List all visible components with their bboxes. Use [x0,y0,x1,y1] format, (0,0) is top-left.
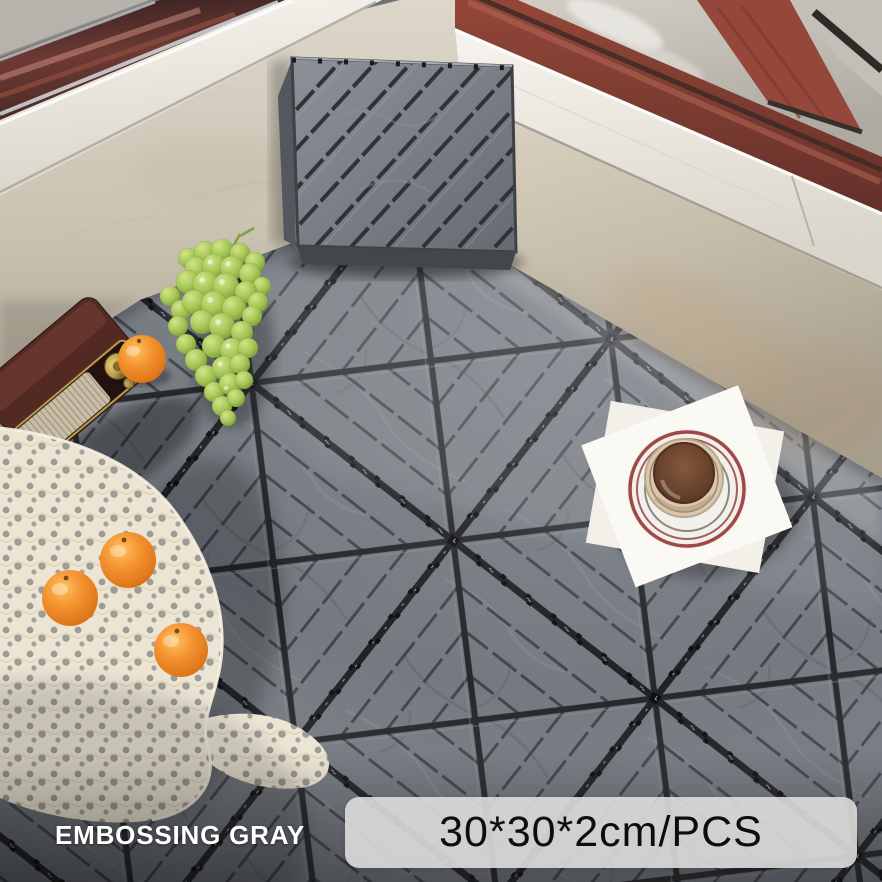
product-photo: EMBOSSING GRAY 30*30*2cm/PCS [0,0,882,882]
balcony-scene [0,0,882,882]
size-spec-box: 30*30*2cm/PCS [345,797,857,868]
coffee-cup [645,439,723,517]
color-name-label: EMBOSSING GRAY [55,820,305,852]
size-spec-label: 30*30*2cm/PCS [439,808,763,857]
